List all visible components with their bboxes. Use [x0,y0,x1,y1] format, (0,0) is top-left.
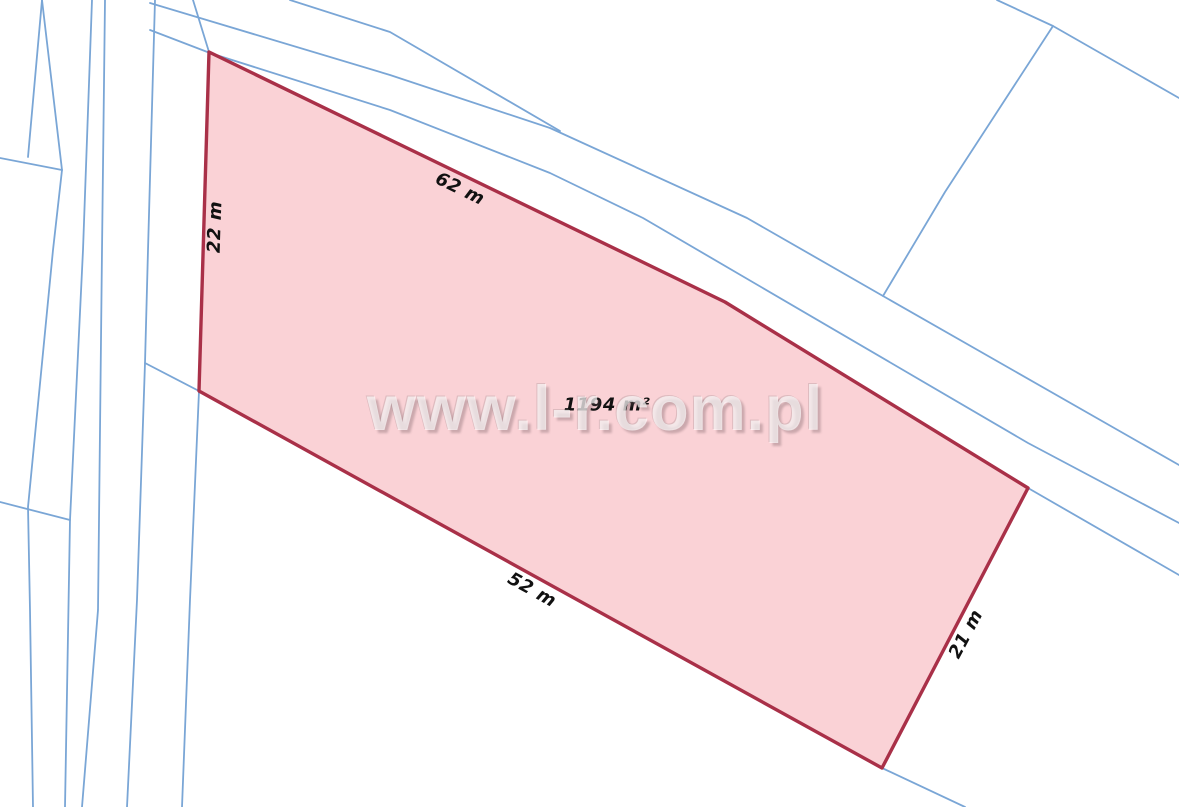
boundary-line [28,0,42,157]
boundary-line [193,0,209,52]
boundary-line [882,768,965,807]
boundary-line [150,30,210,53]
boundary-line [82,0,105,807]
boundary-line [0,502,70,520]
boundary-line [0,158,62,170]
cadastral-map: 62 m 22 m 52 m 21 m 1194 m² www.l-r.com.… [0,0,1179,807]
boundary-line [42,0,62,170]
boundary-line [1028,488,1179,575]
boundary-line [997,0,1179,98]
boundary-line [65,0,92,807]
boundary-line [28,170,62,807]
boundary-line [127,0,155,807]
dimension-label-left: 22 m [204,201,227,254]
parcel-area-label: 1194 m² [564,395,651,416]
boundary-line [182,391,199,807]
boundary-line [145,363,199,391]
boundary-line [883,26,1053,296]
